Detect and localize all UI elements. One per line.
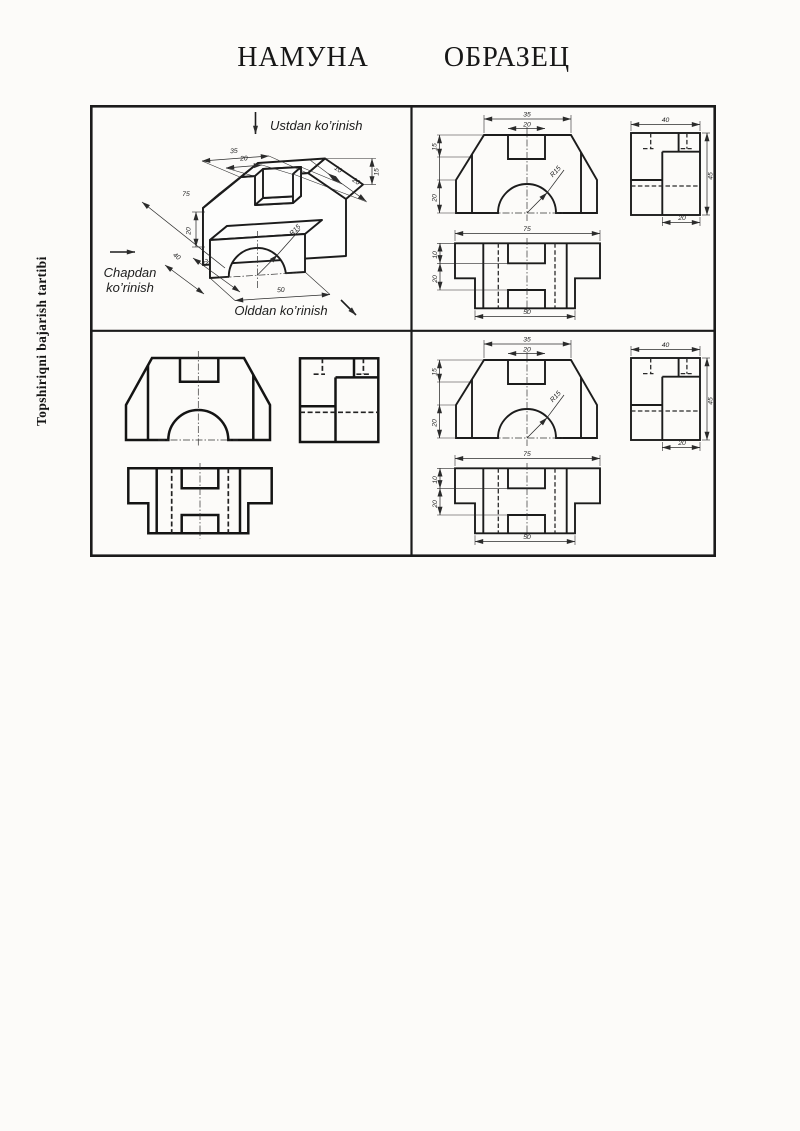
cell-isometric-view: R15 35 20 10 20 15 75 — [104, 112, 381, 318]
dim-label-left-height: 20 — [186, 227, 193, 236]
sidebar-vertical-label: Topshiriqni bajarish tartibi — [34, 256, 50, 426]
top-view: 75 10 20 50 — [432, 226, 600, 320]
dim-label-top-front-width: 50 — [523, 309, 531, 316]
dim-label-bevel-height: 15 — [374, 168, 381, 176]
dim-label-depth-total: 40 — [171, 252, 181, 262]
dim-label-base-width: 75 — [182, 191, 190, 198]
side-view: 40 45 20 — [631, 117, 715, 226]
view-label-left-1: Chapdan — [104, 265, 157, 280]
top-view — [128, 463, 271, 539]
iso-object — [203, 159, 363, 291]
dim-label-top-total-width: 75 — [523, 226, 531, 233]
page-title-namuna: НАМУНА — [223, 42, 383, 74]
dim-label-side-depth: 20 — [677, 215, 686, 222]
dim-label-front-width: 50 — [277, 287, 285, 295]
cell-ortho-plain — [126, 351, 378, 539]
front-view: R15 35 20 15 20 — [432, 112, 598, 222]
dim-label-radius: R15 — [549, 165, 563, 179]
dim-label-slot-width: 20 — [239, 155, 248, 163]
dim-label-top-mid-depth: 20 — [432, 275, 439, 284]
page-title-obrazec: ОБРАЗЕЦ — [427, 42, 587, 74]
cell-ortho-dimensioned-bottom — [432, 337, 715, 546]
dim-label-top-width: 35 — [523, 112, 531, 119]
drawing-table: R15 35 20 10 20 15 75 — [90, 105, 716, 557]
front-view — [126, 351, 270, 447]
dim-label-bevel-height: 15 — [432, 143, 439, 151]
view-label-top: Ustdan ko’rinish — [270, 118, 363, 133]
document-page: { "page": { "title_left": "НАМУНА", "tit… — [0, 0, 800, 1131]
view-label-left-2: ko’rinish — [106, 280, 154, 295]
dim-label-side-height: 45 — [708, 172, 715, 180]
dim-label-top-slot-depth: 10 — [432, 251, 439, 259]
cell-ortho-dimensioned-top: R15 35 20 15 20 — [432, 112, 715, 321]
dim-label-top-width: 35 — [230, 148, 238, 156]
view-label-front: Olddan ko’rinish — [234, 303, 327, 318]
dim-label-slot-width: 20 — [522, 122, 531, 129]
side-view — [300, 358, 378, 442]
dim-label-side-width: 40 — [662, 117, 670, 124]
dim-label-left-height: 20 — [432, 194, 439, 203]
